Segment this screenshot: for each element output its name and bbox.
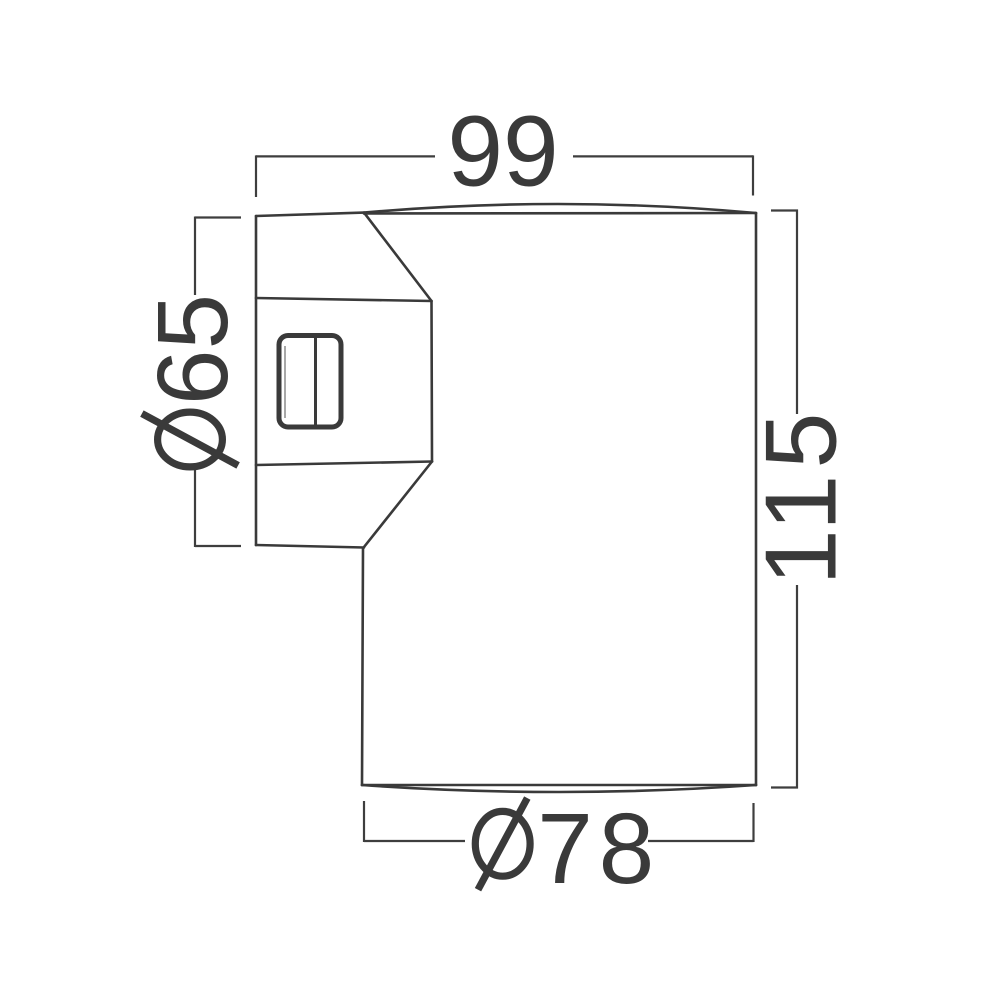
- svg-text:65: 65: [137, 294, 249, 405]
- svg-text:78: 78: [537, 793, 654, 905]
- svg-text:99: 99: [447, 96, 558, 208]
- svg-text:115: 115: [746, 413, 858, 586]
